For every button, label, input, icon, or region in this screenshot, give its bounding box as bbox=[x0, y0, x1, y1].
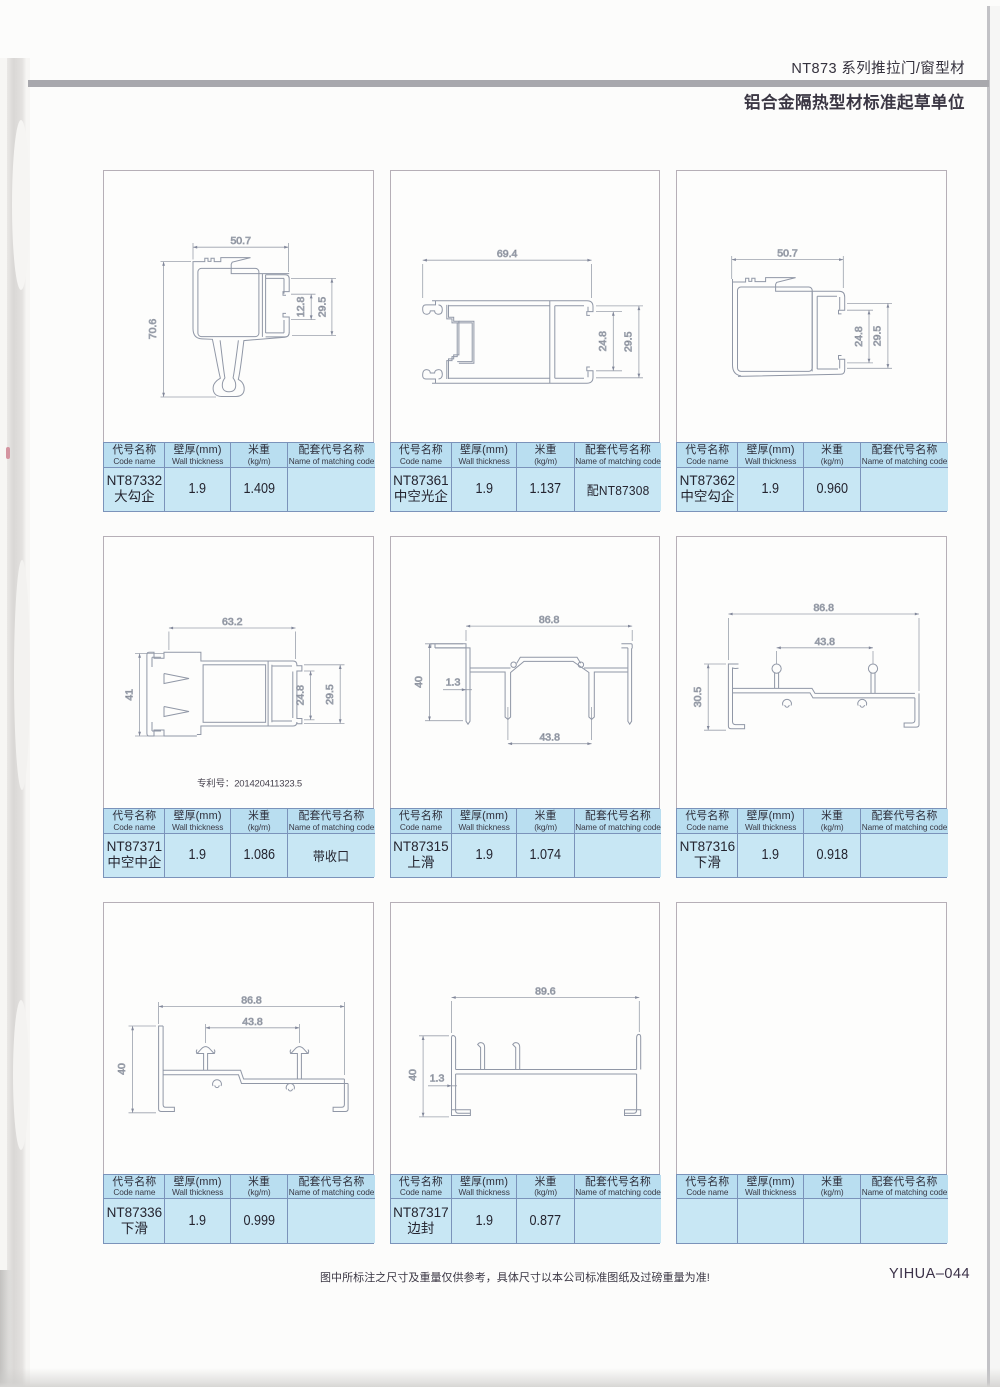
svg-text:50.7: 50.7 bbox=[778, 248, 799, 260]
svg-text:40: 40 bbox=[413, 676, 425, 688]
svg-text:43.8: 43.8 bbox=[539, 732, 560, 744]
svg-text:29.5: 29.5 bbox=[317, 297, 329, 318]
svg-text:29.5: 29.5 bbox=[872, 326, 884, 347]
svg-text:40: 40 bbox=[407, 1069, 419, 1081]
svg-text:1.3: 1.3 bbox=[430, 1072, 445, 1084]
svg-text:专利号：201420411323.5: 专利号：201420411323.5 bbox=[197, 778, 302, 790]
svg-text:1.3: 1.3 bbox=[446, 677, 461, 689]
svg-text:24.8: 24.8 bbox=[597, 331, 609, 352]
svg-text:40: 40 bbox=[117, 1063, 129, 1075]
svg-text:29.5: 29.5 bbox=[622, 331, 634, 352]
svg-text:41: 41 bbox=[124, 689, 136, 701]
svg-text:89.6: 89.6 bbox=[535, 985, 556, 997]
svg-text:69.4: 69.4 bbox=[497, 248, 518, 260]
svg-text:50.7: 50.7 bbox=[231, 235, 252, 247]
svg-text:30.5: 30.5 bbox=[692, 687, 704, 708]
svg-text:86.8: 86.8 bbox=[539, 614, 560, 626]
svg-text:24.8: 24.8 bbox=[295, 685, 307, 706]
svg-text:63.2: 63.2 bbox=[222, 616, 243, 628]
svg-text:43.8: 43.8 bbox=[815, 636, 836, 648]
svg-text:86.8: 86.8 bbox=[814, 602, 835, 614]
svg-text:12.8: 12.8 bbox=[295, 297, 307, 318]
svg-text:43.8: 43.8 bbox=[243, 1015, 264, 1027]
svg-text:24.8: 24.8 bbox=[853, 326, 865, 347]
svg-text:29.5: 29.5 bbox=[324, 684, 336, 705]
svg-text:86.8: 86.8 bbox=[242, 994, 263, 1006]
svg-text:70.6: 70.6 bbox=[147, 319, 159, 340]
